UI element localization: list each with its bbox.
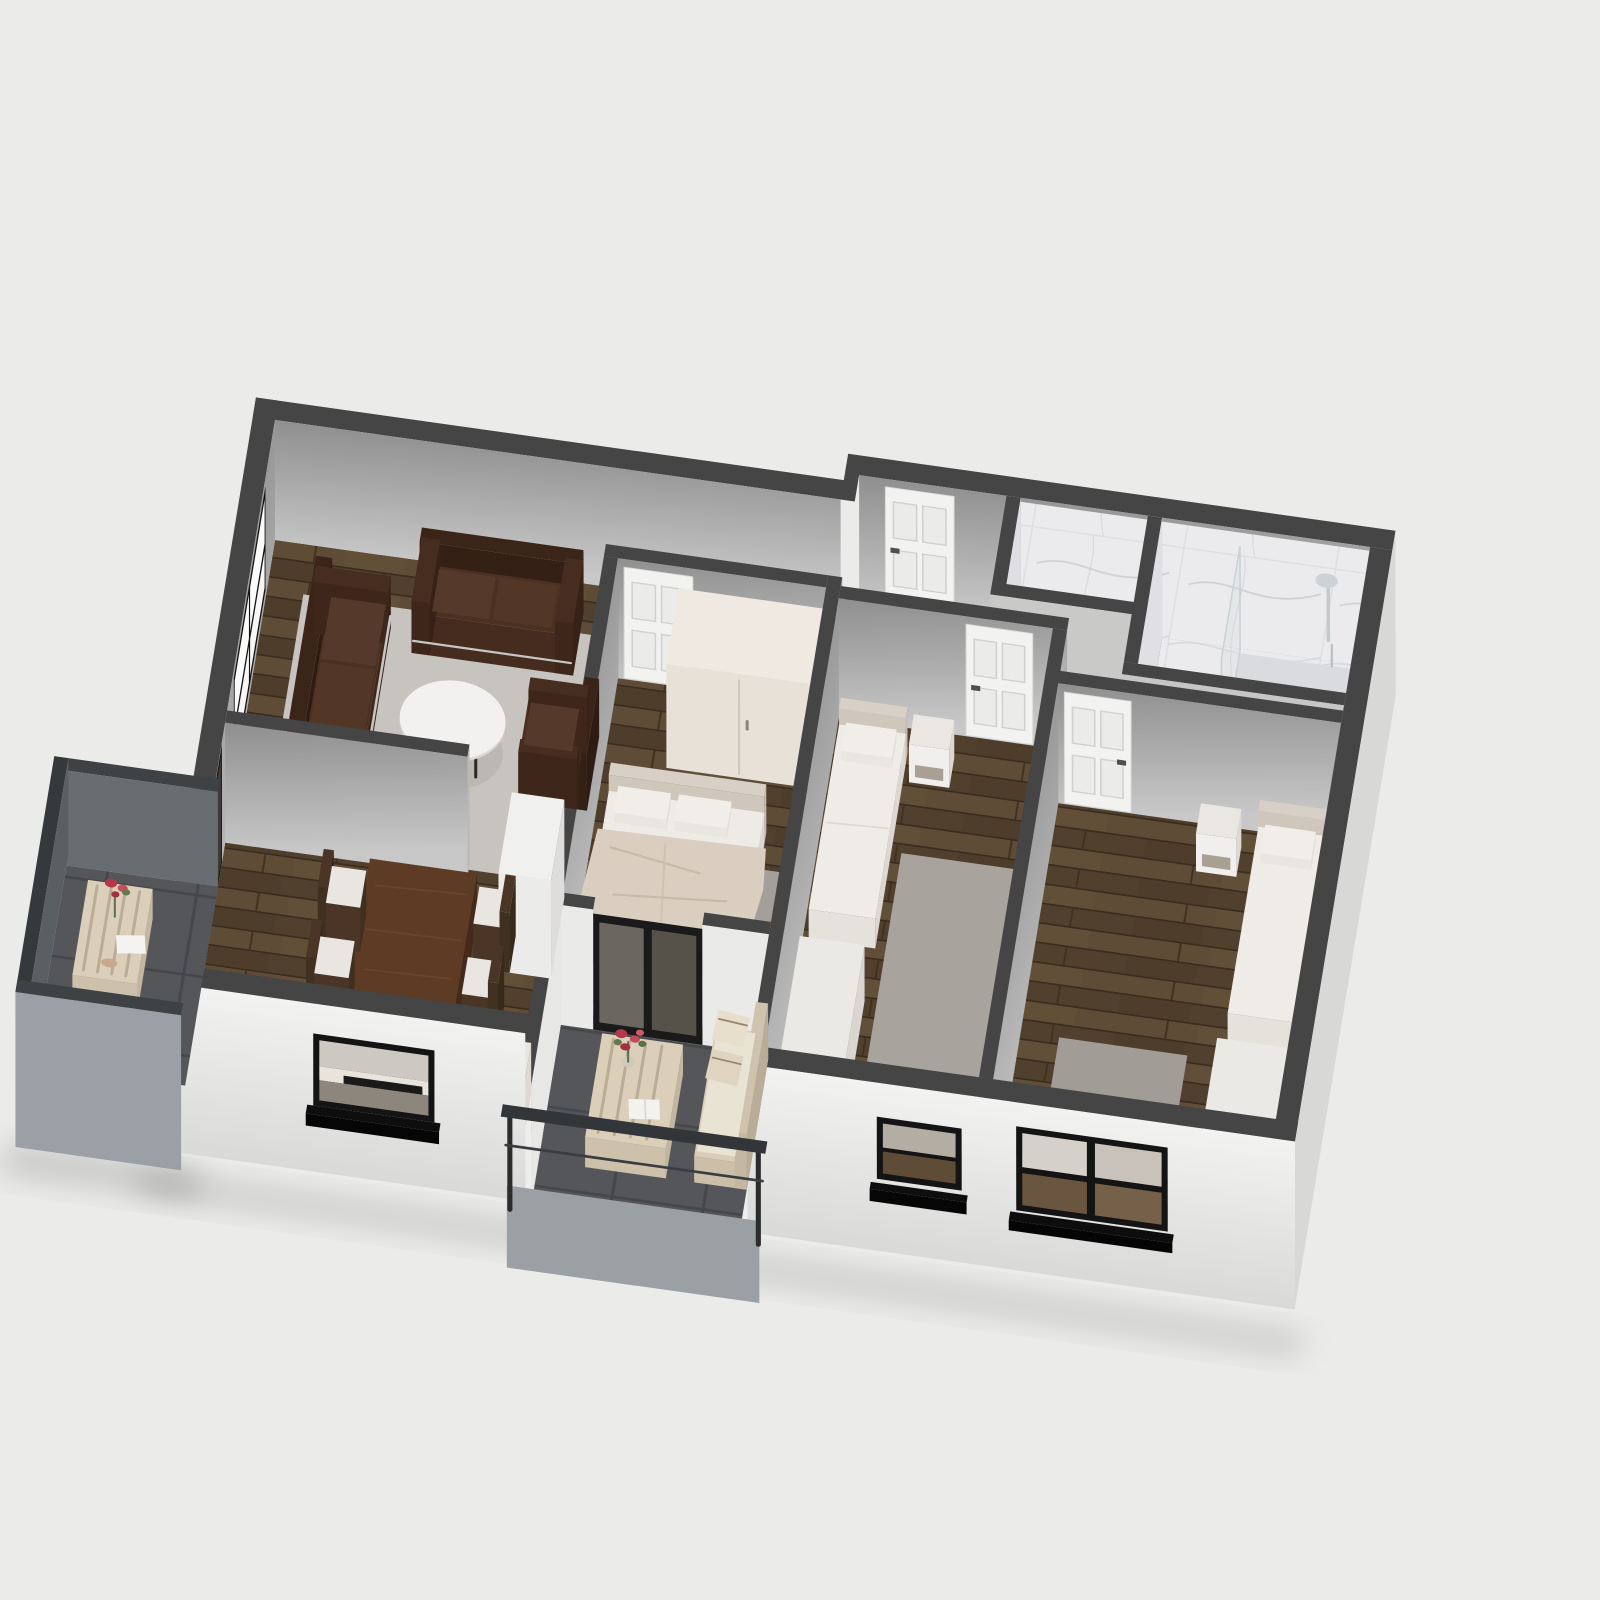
- entrance-door-panel-4: [917, 554, 952, 593]
- sofa-small-cushion-2: [493, 577, 559, 627]
- master-bedroom-door-panel-3: [626, 630, 661, 669]
- sofa-large-cushion-1: [321, 597, 386, 666]
- entrance-door-panel-1: [888, 502, 923, 541]
- apartment-3d-floor-plan: [0, 0, 1600, 1600]
- bedroom3-nightstand-front: [1190, 833, 1243, 877]
- armchair-cushion: [524, 702, 579, 751]
- master-bedroom-door-panel-1: [626, 582, 661, 621]
- bedroom2-nightstand-top: [909, 714, 954, 750]
- dining-chair-2-top: [314, 936, 354, 978]
- sofa-large-cushion-2: [310, 662, 375, 731]
- balcony-left-rail-south-face: [0, 992, 206, 1170]
- master-balcony-slider-frame: [575, 913, 722, 1044]
- bedroom3-nightstand-top: [1196, 803, 1241, 839]
- dining-table-top: [348, 859, 477, 1006]
- sofa-small-cushion-1: [432, 569, 496, 619]
- master-wardrobe-handle: [746, 721, 749, 729]
- entrance-door-panel-2: [917, 506, 952, 545]
- bedroom2-nightstand-front: [903, 744, 956, 788]
- dining-chair-1-top: [326, 866, 366, 908]
- floor-plan-svg: [0, 0, 1600, 1600]
- entrance-door-panel-3: [888, 550, 923, 589]
